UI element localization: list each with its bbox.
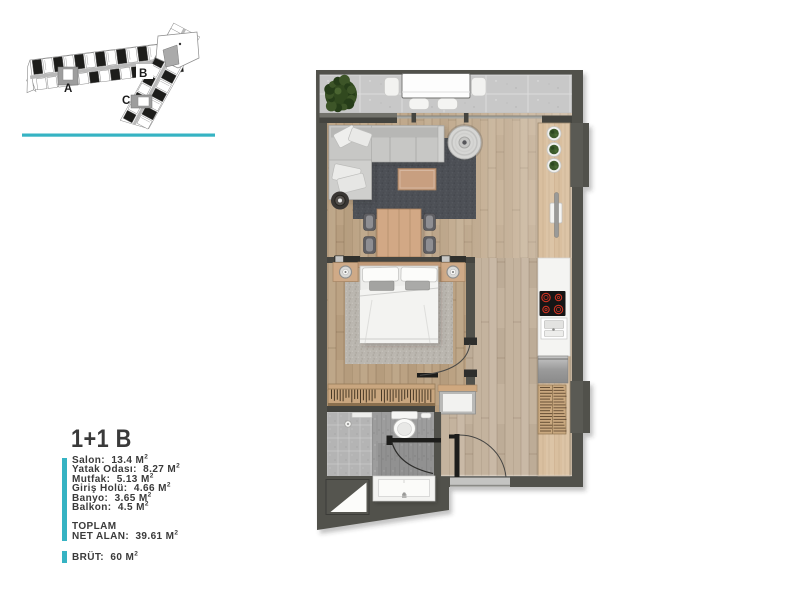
svg-text:B: B [139,68,147,80]
svg-text:C: C [122,95,130,107]
svg-text:A: A [64,83,72,95]
